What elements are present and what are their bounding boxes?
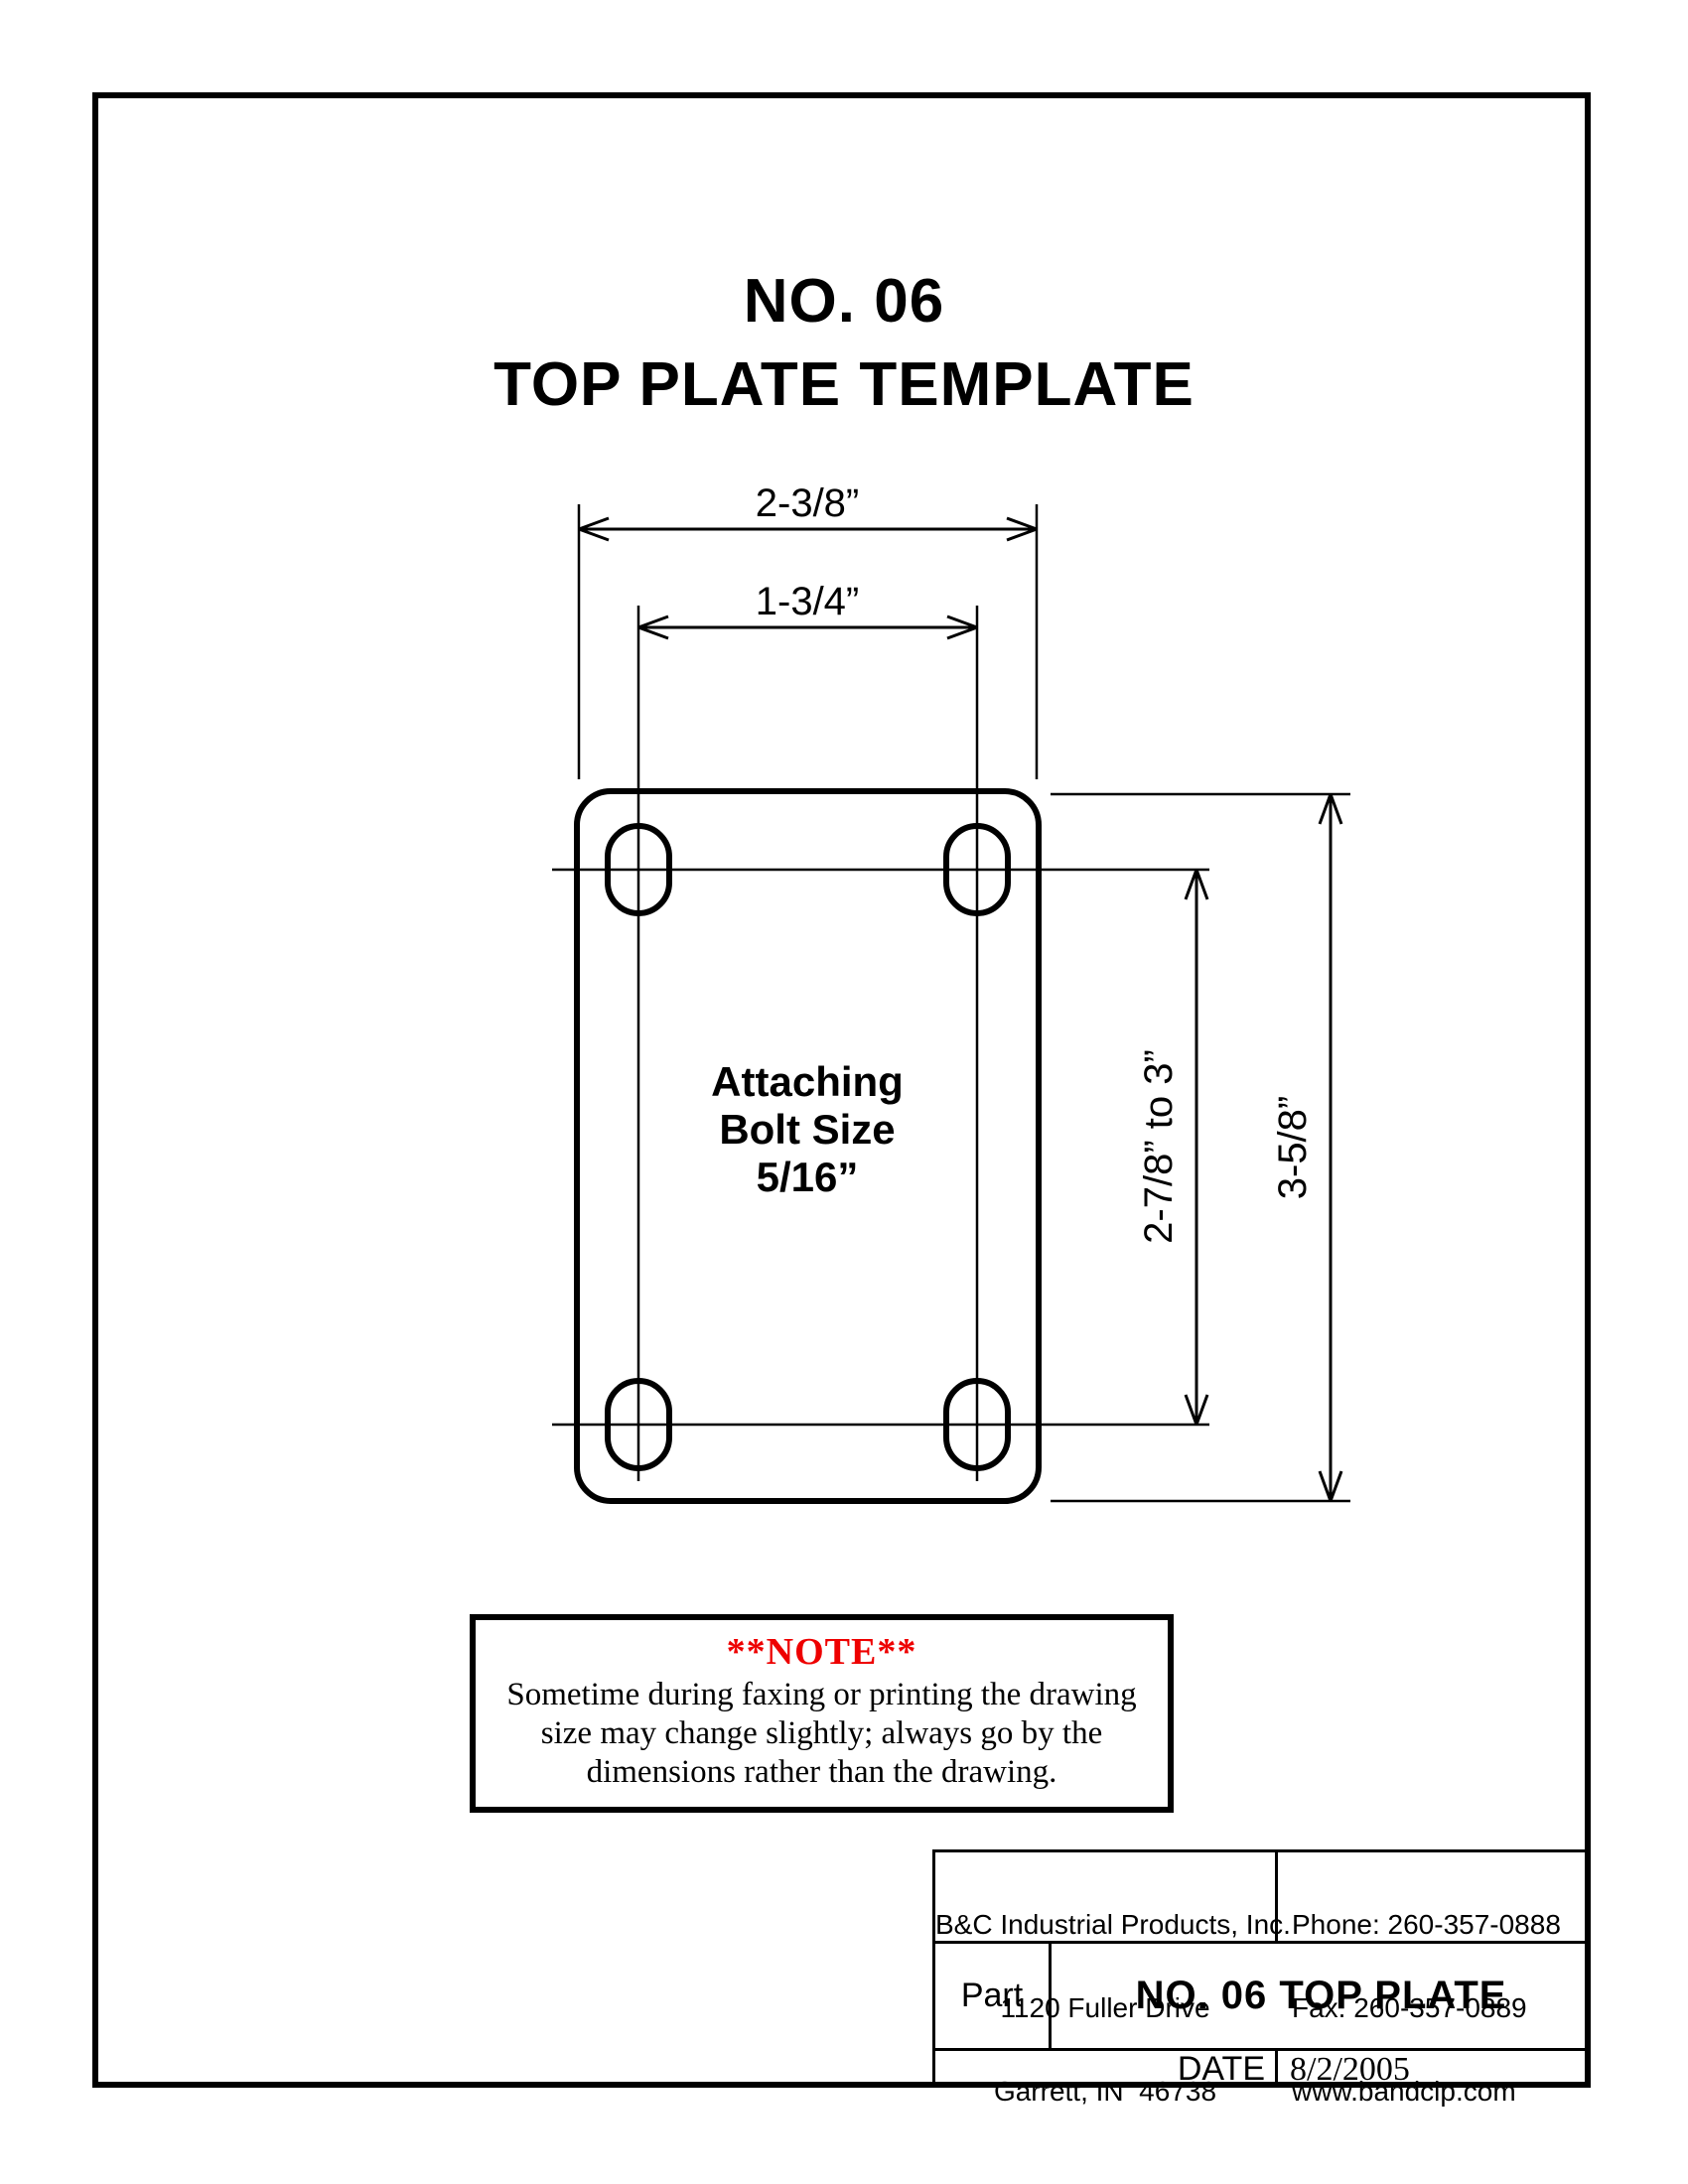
plate-label-line-3: 5/16” — [757, 1154, 859, 1200]
title-block: B&C Industrial Products, Inc. 1120 Fulle… — [932, 1849, 1591, 2088]
part-label: Part — [935, 1944, 1052, 2048]
title-line-2: TOP PLATE TEMPLATE — [0, 343, 1688, 427]
date-value: 8/2/2005 — [1278, 2051, 1591, 2088]
company-phone: Phone: 260-357-0888 — [1292, 1911, 1591, 1939]
dim-label-width-outer: 2-3/8” — [756, 481, 860, 525]
title-block-part-row: Part NO. 06 TOP PLATE — [932, 1941, 1591, 2048]
date-label: DATE — [935, 2051, 1278, 2088]
note-heading: **NOTE** — [476, 1630, 1168, 1674]
document-title: NO. 06 TOP PLATE TEMPLATE — [0, 260, 1688, 427]
contact-info-cell: Phone: 260-357-0888 Fax: 260-357-0889 ww… — [1278, 1852, 1591, 1941]
title-block-company-row: B&C Industrial Products, Inc. 1120 Fulle… — [932, 1849, 1591, 1941]
title-line-1: NO. 06 — [0, 260, 1688, 343]
dim-label-height-inner: 2-7/8” to 3” — [1137, 1049, 1181, 1244]
title-block-date-row: DATE 8/2/2005 — [932, 2048, 1591, 2088]
note-line-2: size may change slightly; always go by t… — [476, 1714, 1168, 1753]
plate-label-line-2: Bolt Size — [719, 1106, 895, 1153]
part-name: NO. 06 TOP PLATE — [1052, 1944, 1591, 2048]
company-info-cell: B&C Industrial Products, Inc. 1120 Fulle… — [935, 1852, 1278, 1941]
company-name: B&C Industrial Products, Inc. — [935, 1911, 1275, 1939]
dim-label-height-outer: 3-5/8” — [1271, 1096, 1315, 1200]
note-line-1: Sometime during faxing or printing the d… — [476, 1676, 1168, 1714]
dim-label-width-inner: 1-3/4” — [756, 580, 860, 623]
plate-label-line-1: Attaching — [711, 1058, 904, 1105]
note-box: **NOTE** Sometime during faxing or print… — [470, 1614, 1174, 1813]
note-line-3: dimensions rather than the drawing. — [476, 1753, 1168, 1792]
